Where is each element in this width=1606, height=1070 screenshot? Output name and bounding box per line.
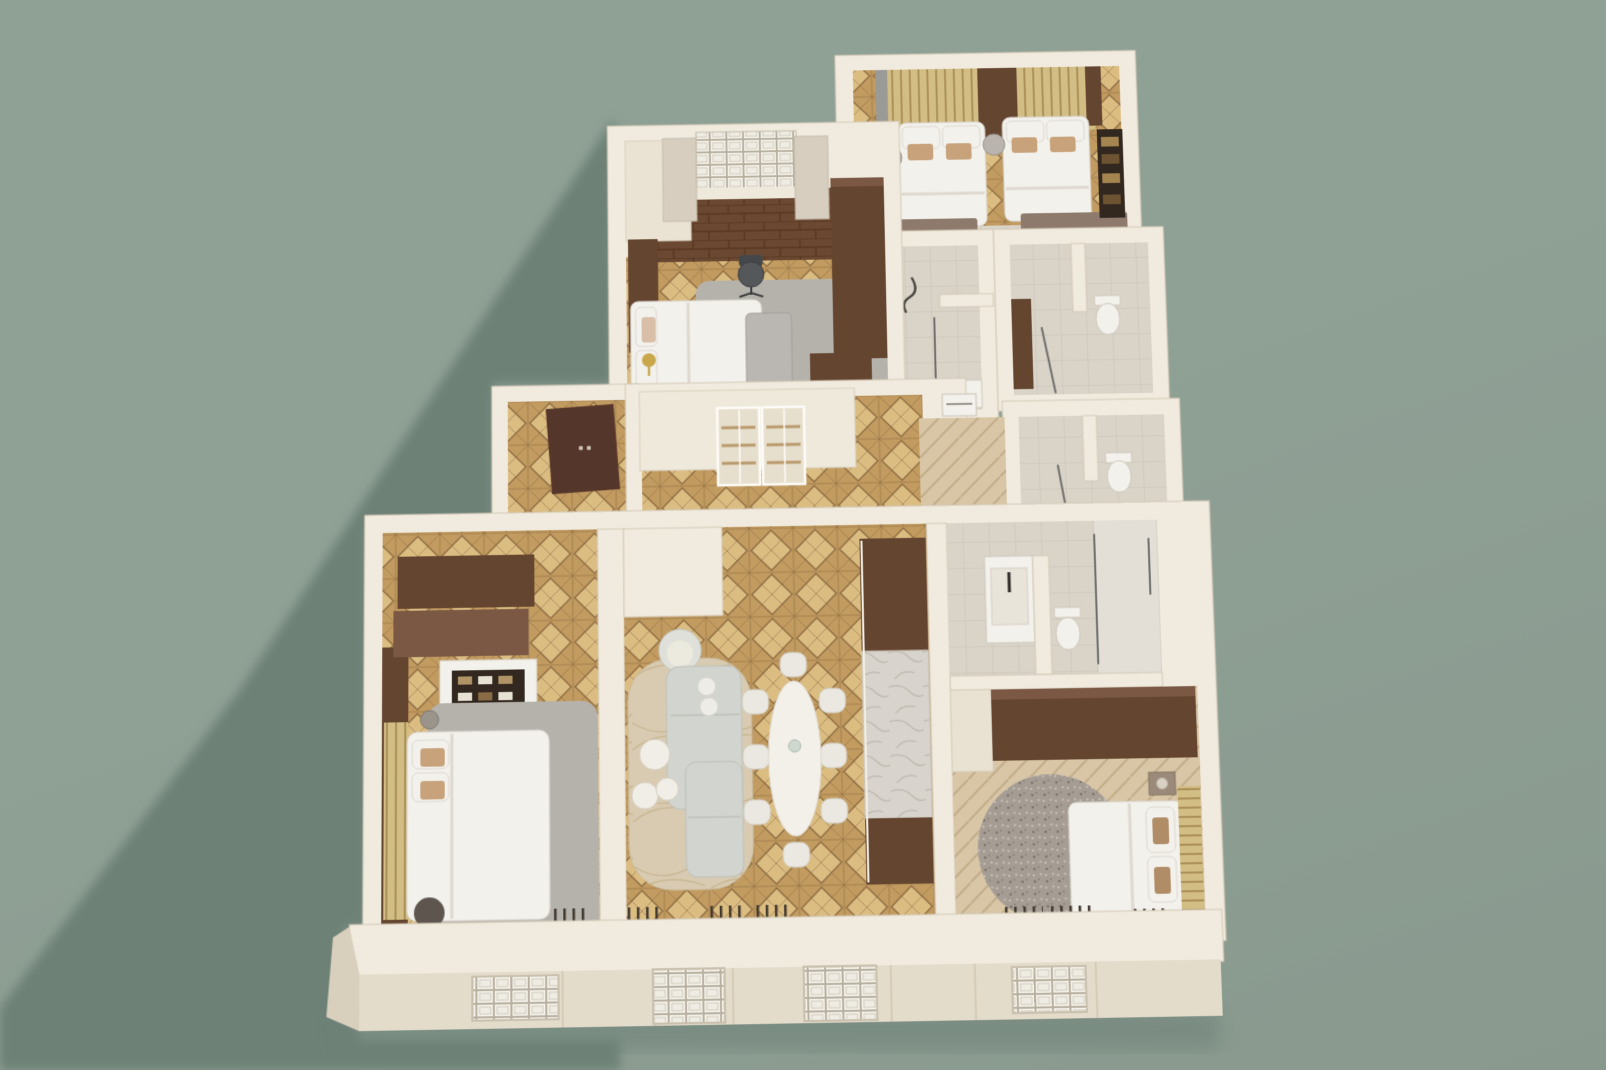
facade-window bbox=[804, 965, 878, 1021]
lower-block bbox=[326, 501, 1229, 1032]
centerpiece bbox=[788, 740, 800, 752]
toilet-part bbox=[1054, 607, 1080, 618]
room-right-bedroom bbox=[950, 686, 1205, 927]
wc-nook-wall bbox=[1033, 555, 1053, 674]
dining-chair bbox=[820, 743, 847, 768]
side-table bbox=[420, 710, 438, 729]
twin-bed-left-part bbox=[902, 193, 985, 194]
shower-floor bbox=[1094, 520, 1162, 674]
shelf-dresser-part bbox=[458, 693, 472, 701]
facade-window bbox=[472, 975, 558, 1020]
front-facade bbox=[326, 909, 1226, 1031]
table-lamp bbox=[1156, 778, 1168, 789]
glass-front-wardrobe-part bbox=[739, 410, 740, 483]
shelf-dresser-part bbox=[498, 692, 512, 700]
office-chair-part bbox=[738, 262, 764, 288]
dining-chair bbox=[821, 798, 848, 823]
wc-nook-wall bbox=[1082, 415, 1098, 481]
closet-panel bbox=[950, 690, 993, 772]
accent-pillow bbox=[946, 143, 972, 160]
wardrobe bbox=[398, 554, 535, 609]
wc-nook-wall bbox=[1071, 243, 1087, 311]
l-shaped-sofa-part bbox=[688, 817, 741, 818]
foot-bench bbox=[746, 313, 793, 392]
room-left-bedroom bbox=[381, 529, 600, 936]
dining-chair bbox=[742, 689, 769, 714]
room-wc-upper bbox=[993, 227, 1169, 412]
coffee-table bbox=[639, 739, 670, 770]
wall-shelf-unit-part bbox=[1101, 137, 1119, 147]
accent-pillow bbox=[907, 144, 933, 161]
wardrobe bbox=[393, 609, 528, 658]
accent-pillow bbox=[420, 748, 444, 767]
wall-shelf-unit bbox=[1097, 129, 1126, 218]
twin-bed-left bbox=[898, 122, 987, 227]
accent-pillow bbox=[1050, 136, 1076, 152]
dining-chair bbox=[783, 842, 810, 867]
living-top-wall bbox=[623, 527, 722, 617]
coffee-table bbox=[632, 782, 659, 809]
round-nightstand bbox=[983, 134, 1005, 155]
nightstand bbox=[1149, 772, 1176, 795]
room-study-bedroom-part bbox=[830, 177, 883, 187]
vanity-cabinet bbox=[1011, 299, 1033, 389]
wall-shelf-unit-part bbox=[1102, 173, 1120, 183]
curtain bbox=[662, 138, 696, 221]
curtain bbox=[794, 136, 829, 219]
media-cabinet-part bbox=[859, 538, 928, 652]
armchair bbox=[659, 629, 702, 672]
twin-bed-right bbox=[1002, 116, 1092, 221]
twin-bed-right-part bbox=[1006, 187, 1089, 188]
shelf-dresser-part bbox=[478, 692, 492, 700]
accent-pillow bbox=[1152, 817, 1169, 844]
building-plan bbox=[0, 1, 1606, 1070]
shelf-dresser-part bbox=[478, 676, 492, 684]
sofa-pillow bbox=[697, 677, 715, 696]
room-ensuite-bathroom bbox=[946, 520, 1162, 676]
bed-part bbox=[688, 303, 689, 395]
dining-chair bbox=[819, 688, 846, 713]
marble-counter bbox=[862, 650, 933, 818]
bed bbox=[1068, 801, 1186, 917]
room-living-dining bbox=[623, 524, 935, 933]
toilet bbox=[1054, 607, 1082, 650]
wall-shelf-unit-part bbox=[1101, 154, 1119, 164]
accent-pillow bbox=[1011, 137, 1037, 153]
shelf-dresser-part bbox=[458, 676, 472, 684]
headboard-side-panel bbox=[1085, 66, 1103, 125]
facade-window bbox=[653, 968, 725, 1024]
vanity bbox=[984, 556, 1035, 643]
toilet-part bbox=[1107, 460, 1132, 492]
partition-wall bbox=[597, 529, 626, 933]
room-study-bedroom bbox=[607, 121, 905, 406]
media-cabinet bbox=[859, 538, 933, 885]
wall-shelf-unit-part bbox=[1103, 194, 1121, 204]
dining-chair bbox=[743, 744, 770, 769]
3d-floor-plan-scene bbox=[0, 0, 1606, 1070]
l-shaped-sofa-part bbox=[685, 761, 743, 877]
media-cabinet-part bbox=[865, 817, 934, 884]
dining-chair bbox=[780, 652, 807, 677]
vanity-part bbox=[1009, 572, 1010, 592]
entry-door bbox=[546, 404, 620, 494]
bed bbox=[407, 730, 550, 922]
toilet-part bbox=[1096, 303, 1121, 335]
shower-partition bbox=[940, 294, 994, 308]
accent-pillow bbox=[420, 781, 444, 800]
facade-window bbox=[1012, 966, 1087, 1013]
wardrobe bbox=[830, 177, 887, 359]
coffee-table bbox=[656, 778, 679, 801]
headboard-slats bbox=[383, 722, 408, 920]
toilet-part bbox=[1055, 617, 1080, 650]
dining-chair bbox=[744, 800, 771, 825]
accent-pillow bbox=[1154, 867, 1171, 894]
sofa-pillow bbox=[700, 697, 718, 716]
window bbox=[696, 131, 797, 190]
accent-pillow bbox=[642, 317, 656, 343]
window-sill bbox=[697, 186, 798, 199]
shelf-dresser-part bbox=[498, 676, 512, 684]
